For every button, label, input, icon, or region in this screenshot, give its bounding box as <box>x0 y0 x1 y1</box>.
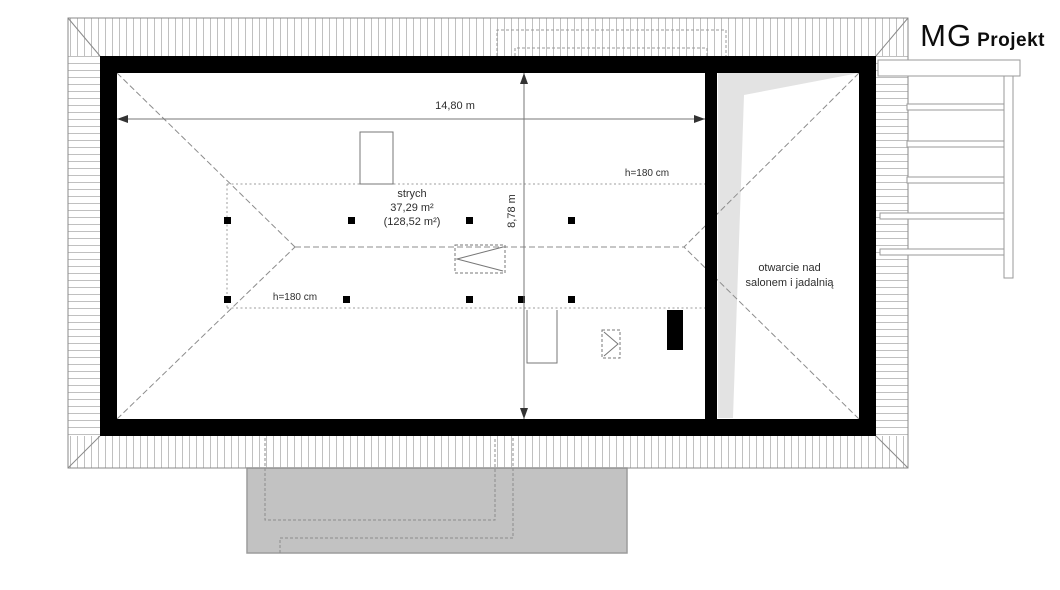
pergola-post <box>1004 76 1013 278</box>
post-marker <box>224 217 231 224</box>
attic-floor-plan-sheet: 14,80 m 8,78 m strych 37,29 m² (128,52 m… <box>0 0 1060 590</box>
post-marker <box>466 296 473 303</box>
dimension-arrow <box>694 115 705 123</box>
shaft-outline <box>527 310 557 363</box>
post-marker <box>224 296 231 303</box>
opening-label-line1: otwarcie nad <box>712 261 867 276</box>
logo-projekt-text: Projekt <box>977 30 1045 52</box>
room-name: strych <box>347 187 477 201</box>
roof-window-icon <box>602 330 620 358</box>
dimension-arrow <box>117 115 128 123</box>
dimension-arrow <box>520 408 528 419</box>
hip-line <box>117 73 295 247</box>
post-markers <box>224 217 575 303</box>
opening-shade <box>718 73 859 418</box>
dimension-width <box>117 115 705 123</box>
chimney-outline <box>360 132 393 184</box>
chimney-solid <box>667 310 683 350</box>
divider-wall <box>705 73 717 419</box>
mg-projekt-logo: MG Projekt <box>915 18 1045 54</box>
opening-label-line2: salonem i jadalnią <box>712 276 867 291</box>
pergola-beam <box>907 104 1006 110</box>
post-marker <box>568 217 575 224</box>
exterior-wall <box>100 56 876 436</box>
room-area: 37,29 m² <box>347 201 477 215</box>
roof-lines <box>117 73 859 419</box>
pergola-beam <box>907 141 1006 147</box>
dimension-arrow <box>520 73 528 84</box>
hip-line <box>117 247 295 419</box>
logo-mg-text: MG <box>920 18 972 54</box>
opening-label: otwarcie nad salonem i jadalnią <box>712 261 867 291</box>
dimension-width-label: 14,80 m <box>400 100 510 112</box>
room-label: strych 37,29 m² (128,52 m²) <box>347 187 477 229</box>
dimension-height-label: 8,78 m <box>506 194 518 228</box>
pergola-beam <box>880 213 1006 219</box>
pergola-beam <box>907 177 1006 183</box>
room-area-total: (128,52 m²) <box>347 215 477 229</box>
dimension-height <box>520 73 528 419</box>
roof-window-icon <box>455 245 505 273</box>
pergola-beam <box>880 249 1006 255</box>
post-marker <box>568 296 575 303</box>
knee-wall-height-label-top: h=180 cm <box>597 168 697 179</box>
pergola-top-beam <box>878 60 1020 76</box>
knee-wall-height-label-bottom: h=180 cm <box>245 292 345 303</box>
floor-plan-drawing <box>0 0 1060 590</box>
